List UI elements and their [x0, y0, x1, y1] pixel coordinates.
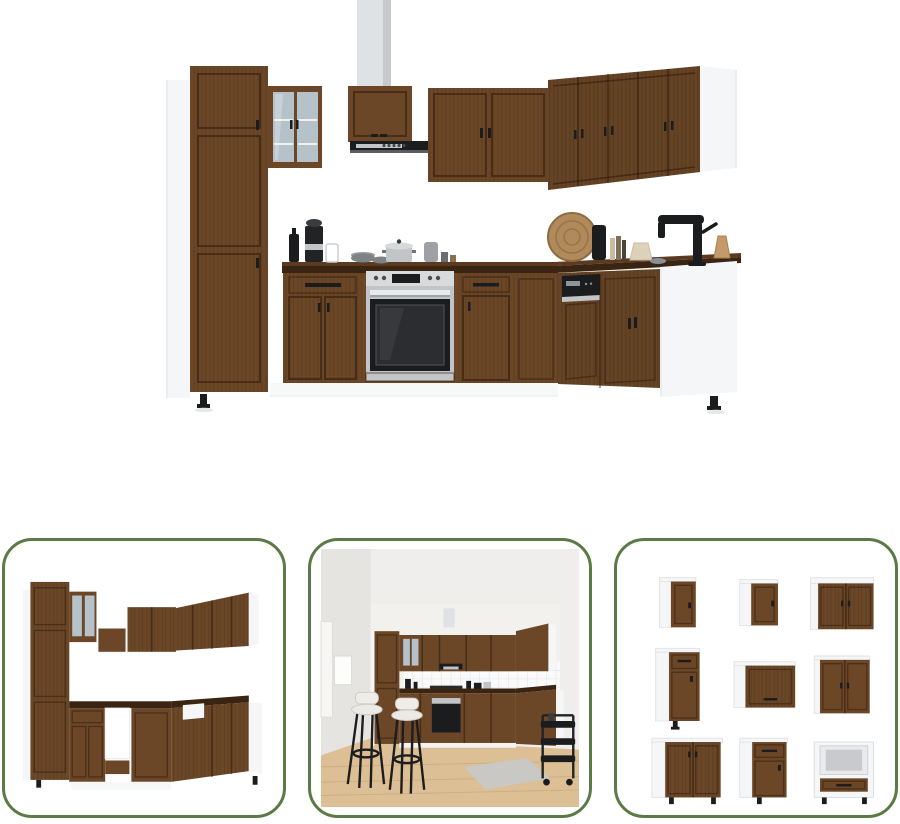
wall-cabinet-2-door	[814, 656, 869, 713]
wall-cabinet-end-panel	[700, 66, 737, 172]
glass-jug	[326, 244, 338, 262]
extractor-hood	[350, 141, 428, 153]
oven-display	[392, 274, 420, 283]
tall-pantry-cabinet	[166, 66, 268, 408]
oven	[432, 704, 461, 733]
hood-cabinet	[348, 86, 412, 142]
cooktop	[430, 686, 462, 689]
bottle	[289, 234, 299, 262]
thumb-module-grid-render	[625, 549, 887, 807]
paper-bag	[630, 243, 652, 260]
main-product-image	[0, 0, 900, 430]
thumb-room-scene-render	[319, 549, 581, 807]
wall-cabinet-1-door	[659, 578, 695, 628]
wall-cabinets-left-run	[428, 88, 548, 182]
base-cabinet-drawer-mid	[458, 273, 514, 383]
wall-cabinet-1-door	[740, 580, 778, 626]
oven-slot	[105, 708, 129, 758]
oven-handle	[370, 290, 450, 295]
base-cabinet-2-door	[652, 738, 723, 804]
kitchen-render	[0, 0, 900, 430]
jug	[424, 242, 438, 262]
thumb-angle-view-render	[13, 549, 275, 807]
product-image-collage	[0, 0, 900, 824]
gallery-thumb-module-grid[interactable]	[614, 538, 898, 818]
wall-cabinets-right-run	[548, 66, 737, 190]
base-cabinets-right-run	[558, 269, 660, 388]
oven-housing-cabinet	[814, 742, 873, 804]
wall-cabinet-2-door	[810, 578, 873, 630]
vase	[592, 225, 606, 260]
bowl	[351, 254, 375, 263]
picture-frame	[334, 656, 351, 685]
base-cabinet-drawer-door	[740, 738, 788, 804]
base-cabinet-drawer-left	[283, 273, 362, 383]
wall-cabinet-flip-up	[734, 662, 795, 708]
cutting-board	[714, 236, 730, 258]
plinth	[270, 383, 558, 396]
base-cabinet-drawer-door	[656, 648, 700, 729]
woven-tray	[548, 213, 596, 261]
glass-wall-cabinet	[268, 86, 322, 168]
corner-base-cabinet	[514, 273, 558, 383]
handle	[256, 258, 259, 268]
gallery-thumbnails	[2, 538, 898, 818]
gallery-thumb-angle-view[interactable]	[2, 538, 286, 818]
sink-base-end-panel	[660, 261, 737, 410]
handle	[256, 120, 259, 130]
window	[321, 622, 332, 718]
built-in-oven	[362, 271, 458, 383]
extractor-duct	[357, 0, 391, 90]
appliance-slot	[183, 703, 204, 719]
gallery-thumb-room-scene[interactable]	[308, 538, 592, 818]
